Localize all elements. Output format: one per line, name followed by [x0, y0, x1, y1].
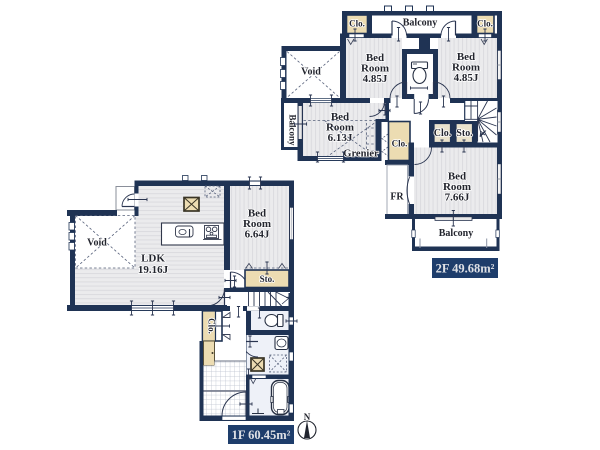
svg-text:2F 49.68m²: 2F 49.68m²: [436, 262, 495, 276]
svg-text:Sto.: Sto.: [260, 274, 275, 284]
svg-text:7.66J: 7.66J: [445, 192, 470, 204]
svg-text:Void: Void: [301, 67, 321, 78]
svg-text:6.64J: 6.64J: [245, 229, 270, 241]
svg-text:Balcony: Balcony: [288, 114, 298, 146]
svg-text:4.85J: 4.85J: [454, 72, 479, 84]
svg-text:Balcony: Balcony: [403, 18, 437, 29]
svg-text:Clo.: Clo.: [349, 19, 365, 29]
svg-text:Grenier: Grenier: [343, 149, 379, 160]
svg-text:1F 60.45m²: 1F 60.45m²: [232, 428, 291, 442]
svg-text:Sto.: Sto.: [456, 128, 473, 139]
svg-text:Balcony: Balcony: [439, 228, 473, 239]
svg-text:19.16J: 19.16J: [138, 264, 169, 276]
svg-text:FR: FR: [390, 192, 404, 203]
svg-text:LDK: LDK: [141, 253, 165, 265]
svg-text:Clo.: Clo.: [392, 139, 408, 149]
svg-text:Void: Void: [87, 238, 107, 249]
svg-text:Clo.: Clo.: [477, 19, 493, 29]
svg-text:4.85J: 4.85J: [363, 73, 388, 85]
svg-text:Clo.: Clo.: [434, 128, 452, 139]
svg-text:N: N: [304, 412, 311, 422]
